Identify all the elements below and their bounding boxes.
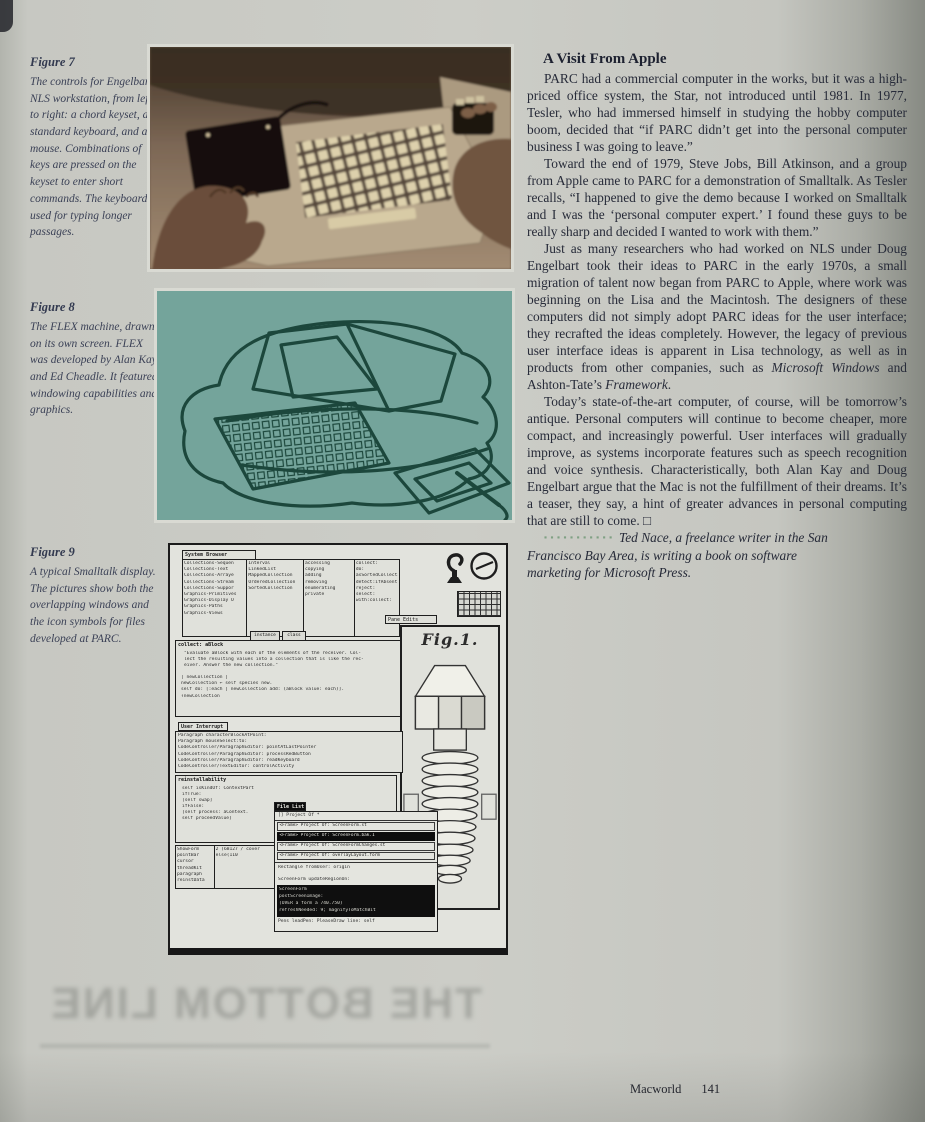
clock-icon [469,551,499,581]
figure8-flex-machine-drawing [157,291,512,520]
reverse-side-bleed-rule [40,1044,490,1048]
article-paragraph-4: Today’s state-of-the-art computer, of co… [527,393,907,529]
figure8-caption-body: The FLEX machine, drawn on its own scree… [30,321,158,416]
fig1-label: Fig.1. [402,627,498,648]
article-paragraph-3: Just as many researchers who had worked … [527,240,907,393]
flex-machine-illustration [157,291,512,520]
figure7-caption-body: The controls for Engelbart's NLS worksta… [30,76,160,238]
figure7-caption: Figure 7 The controls for Engelbart's NL… [30,53,160,241]
footer-page-number: 141 [701,1082,720,1096]
article-paragraph-1: PARC had a commercial computer in the wo… [527,70,907,155]
file-list-mid-lines: Rectangle fromUser: origin ScreenForm up… [275,862,437,884]
footer-magazine-name: Macworld [630,1082,681,1096]
browser-method-list: collect:do:asSortedCollection:detect:ifA… [355,560,399,636]
figure9-caption-body: A typical Smalltalk display. The picture… [30,566,156,645]
reinstallability-title: reinstallability [176,776,396,786]
scanned-magazine-page: Figure 7 The controls for Engelbart's NL… [0,0,925,1122]
figure9-smalltalk-display: System Browser Collections-SequenCollect… [168,543,508,955]
browser-instance-button: instance [250,631,280,641]
file-list-inverse-code-block: ScreenForm postScreenImage: (OVER a form… [277,885,435,917]
figure8-caption-title: Figure 8 [30,298,160,316]
file-list-bottom-line: Pens leadPen: PleaseDraw line: self [275,919,437,925]
nls-workstation-illustration [150,47,511,269]
browser-category-list: Collections-SequenCollections-TextCollec… [183,560,247,636]
fig1-pane-tab: Pane Edits [385,615,437,624]
page-footer: Macworld141 [630,1083,740,1096]
system-browser-window: Collections-SequenCollections-TextCollec… [182,559,400,637]
user-interrupt-window: Paragraph characterBlockAtPoint:Paragrap… [175,731,403,773]
file-list-window: [] Project Of * <Frame> Project Of: Scre… [274,811,438,932]
article-heading: A Visit From Apple [543,50,907,69]
browser-protocol-list: accessingcopyingaddingremovingenumeratin… [304,560,355,636]
article-column: A Visit From Apple PARC had a commercial… [527,50,907,582]
reverse-side-bleed-text: THE BOTTOM LINE [52,972,482,1036]
user-interrupt-tab: User Interrupt [178,722,228,731]
collect-method-comment: "Evaluate aBlock with each of the elemen… [176,651,400,670]
scan-corner-mark [0,0,13,32]
article-paragraph-2: Toward the end of 1979, Steve Jobs, Bill… [527,155,907,240]
figure8-caption: Figure 8 The FLEX machine, drawn on its … [30,298,160,419]
browser-class-list: IntervalLinkedListMappedCollectionOrdere… [247,560,304,636]
calendar-icon [457,591,501,617]
browser-class-button: class [282,631,306,641]
bio-dots-decoration: ▪▪▪▪▪▪▪▪▪▪▪ [544,532,616,542]
figure7-caption-title: Figure 7 [30,53,160,71]
file-list-header-row: [] Project Of * [275,812,437,821]
author-bio: ▪▪▪▪▪▪▪▪▪▪▪ Ted Nace, a freelance writer… [527,529,841,581]
collect-window-title: collect: aBlock [176,641,400,651]
figure9-caption: Figure 9 A typical Smalltalk display. Th… [30,543,160,647]
file-list-rows: <Frame> Project Of: ScreenForm.st<Frame>… [275,822,437,860]
word-list-pane: ShowFormpointBarcursorthreadKitparagraph… [175,845,283,889]
file-list-tab: File List [274,802,306,811]
figure7-photo-nls-workstation [150,47,511,269]
system-browser-tab: System Browser [182,550,256,560]
figure9-caption-title: Figure 9 [30,543,160,561]
word-list: ShowFormpointBarcursorthreadKitparagraph… [176,846,215,888]
collect-method-code: | newCollection |newCollection ← self sp… [176,675,400,700]
project-lamp-icon [444,553,464,585]
word-list-note: 2 (68127 / coverelse(110 [215,846,282,888]
collect-method-window: collect: aBlock "Evaluate aBlock with ea… [175,640,401,717]
interrupt-stack-lines: Paragraph characterBlockAtPoint:Paragrap… [176,732,402,771]
